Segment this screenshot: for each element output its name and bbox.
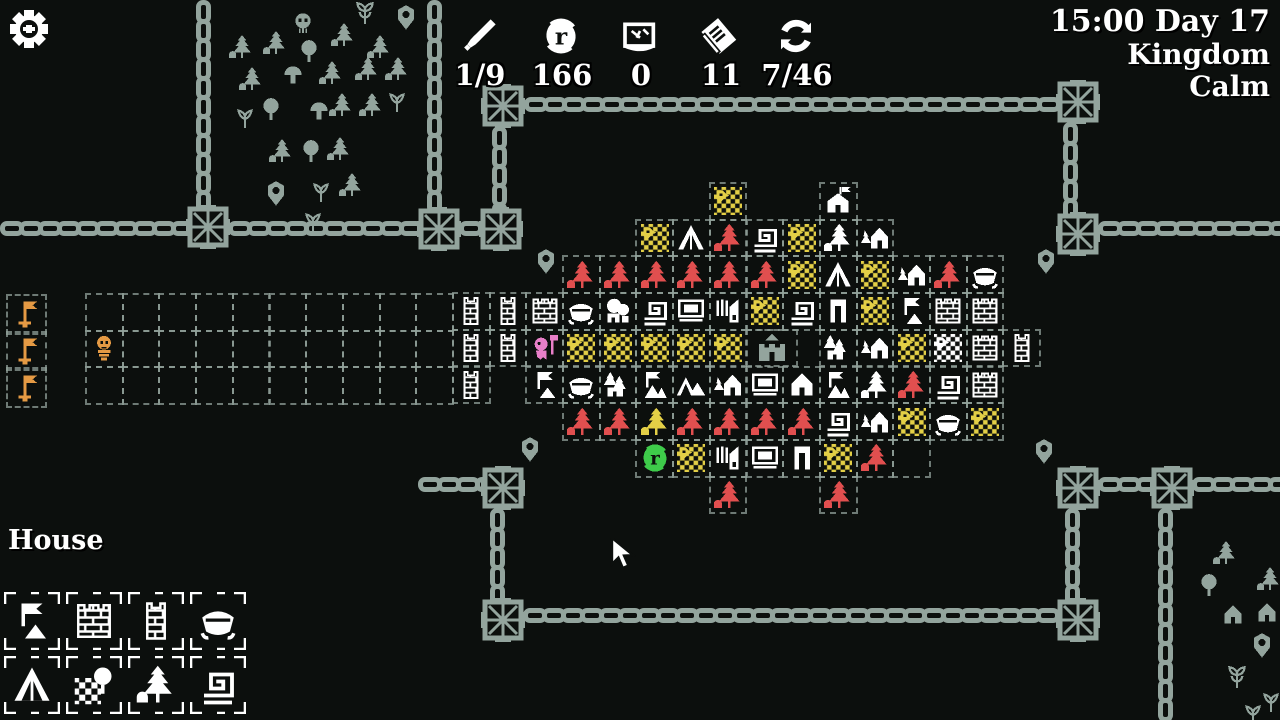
forest-round-tree bbox=[258, 96, 284, 126]
grid-cell[interactable] bbox=[158, 330, 197, 369]
chain-knot bbox=[1150, 466, 1194, 510]
tile-red-pine[interactable] bbox=[929, 255, 968, 294]
tile-red-pine[interactable] bbox=[856, 439, 895, 478]
tile-red-pine[interactable] bbox=[709, 402, 748, 441]
grid-cell[interactable] bbox=[232, 330, 271, 369]
forest-sprout bbox=[384, 88, 410, 118]
tile-red-pine[interactable] bbox=[562, 255, 601, 294]
tile-boat[interactable] bbox=[929, 402, 968, 441]
tile-spiral[interactable] bbox=[782, 292, 821, 331]
forest-sprout bbox=[232, 104, 258, 134]
tile-farm[interactable] bbox=[892, 402, 931, 441]
chain-knot bbox=[1056, 80, 1100, 124]
tile-farm[interactable] bbox=[635, 219, 674, 258]
veg-sprout bbox=[1240, 700, 1266, 720]
tile-farm[interactable] bbox=[819, 439, 858, 478]
tile-red-pine[interactable] bbox=[746, 255, 785, 294]
tile-quarry[interactable] bbox=[599, 292, 638, 331]
rally-flag-cell[interactable] bbox=[6, 367, 47, 408]
deck-icon bbox=[699, 16, 743, 56]
tile-red-pine[interactable] bbox=[709, 255, 748, 294]
settings-button[interactable] bbox=[8, 8, 50, 50]
tile-farm[interactable] bbox=[856, 292, 895, 331]
sword-icon bbox=[458, 16, 502, 56]
grid-cell[interactable] bbox=[379, 366, 418, 405]
tile-farm[interactable] bbox=[599, 329, 638, 368]
forest-pine bbox=[326, 136, 352, 166]
forest-pine bbox=[354, 56, 380, 86]
game-viewport: 15:00 Day 17 Kingdom Calm House bbox=[0, 0, 1280, 720]
map-count: 0 bbox=[596, 58, 686, 92]
palette-item-white-field[interactable] bbox=[66, 656, 122, 714]
grid-cell[interactable] bbox=[195, 366, 234, 405]
palette-item-spiral[interactable] bbox=[190, 656, 246, 714]
tile-spiral[interactable] bbox=[819, 402, 858, 441]
grid-cell[interactable] bbox=[415, 366, 454, 405]
grid-cell[interactable] bbox=[232, 366, 271, 405]
map-pin-icon bbox=[1030, 438, 1058, 470]
tile-farm[interactable] bbox=[709, 182, 748, 221]
tile-boat[interactable] bbox=[562, 366, 601, 405]
chain-knot bbox=[479, 207, 523, 251]
tile-tower[interactable] bbox=[452, 366, 491, 405]
forest-sprout bbox=[308, 178, 334, 208]
tile-red-pine[interactable] bbox=[709, 476, 748, 515]
mouse-cursor bbox=[610, 538, 640, 576]
tile-wall[interactable] bbox=[929, 292, 968, 331]
forest-pine bbox=[238, 66, 264, 96]
tile-red-pine[interactable] bbox=[709, 219, 748, 258]
tile-farm[interactable] bbox=[856, 255, 895, 294]
grid-cell[interactable] bbox=[158, 366, 197, 405]
grid-cell[interactable] bbox=[122, 366, 161, 405]
tile-house[interactable] bbox=[782, 366, 821, 405]
region-label: Kingdom bbox=[1127, 38, 1270, 71]
forest-pine bbox=[262, 30, 288, 60]
map-icon bbox=[619, 16, 663, 56]
veg-pine bbox=[1212, 540, 1238, 570]
tile-flag-bldg[interactable] bbox=[819, 366, 858, 405]
palette-item-boat[interactable] bbox=[190, 592, 246, 650]
tile-wall[interactable] bbox=[966, 329, 1005, 368]
grid-cell[interactable] bbox=[415, 293, 454, 332]
tile-mill[interactable] bbox=[709, 439, 748, 478]
forest-skull bbox=[290, 10, 316, 40]
map-pin-icon bbox=[262, 180, 290, 212]
palette-item-wall[interactable] bbox=[66, 592, 122, 650]
grid-cell[interactable] bbox=[269, 366, 308, 405]
tile-tower[interactable] bbox=[1002, 329, 1041, 368]
tile-house-tree[interactable] bbox=[892, 255, 931, 294]
tile-house-tree[interactable] bbox=[856, 402, 895, 441]
forest-pine bbox=[384, 56, 410, 86]
tile-tower[interactable] bbox=[452, 329, 491, 368]
chain-knot bbox=[417, 207, 461, 251]
veg-round-tree bbox=[1196, 572, 1222, 602]
tile-banner[interactable] bbox=[892, 292, 931, 331]
forest-round-tree bbox=[298, 138, 324, 168]
chain-knot bbox=[481, 466, 525, 510]
grid-cell[interactable] bbox=[195, 293, 234, 332]
tile-spiral[interactable] bbox=[635, 292, 674, 331]
tile-red-pine[interactable] bbox=[599, 402, 638, 441]
tile-red-pine[interactable] bbox=[672, 402, 711, 441]
tile-pines-house[interactable] bbox=[599, 366, 638, 405]
tile-flag-bldg[interactable] bbox=[635, 366, 674, 405]
tile-wall[interactable] bbox=[525, 292, 564, 331]
tile-tower[interactable] bbox=[452, 292, 491, 331]
tile-farm[interactable] bbox=[635, 329, 674, 368]
palette-item-banner[interactable] bbox=[4, 592, 60, 650]
tile-spiral[interactable] bbox=[746, 219, 785, 258]
grid-cell[interactable] bbox=[415, 330, 454, 369]
tile-wall[interactable] bbox=[966, 292, 1005, 331]
tile-door[interactable] bbox=[782, 439, 821, 478]
tile-market[interactable] bbox=[746, 366, 785, 405]
forest-pine bbox=[228, 34, 254, 64]
tile-tower[interactable] bbox=[489, 292, 528, 331]
sword-count: 1/9 bbox=[435, 58, 525, 92]
skeleton-enemy-cell[interactable] bbox=[85, 330, 124, 369]
tile-pink-worker[interactable] bbox=[525, 329, 564, 368]
grid-cell[interactable] bbox=[232, 293, 271, 332]
cycle-count: 7/46 bbox=[752, 58, 842, 92]
tile-tent[interactable] bbox=[672, 219, 711, 258]
tile-tent[interactable] bbox=[819, 255, 858, 294]
tile-farm[interactable] bbox=[966, 402, 1005, 441]
grid-cell[interactable] bbox=[85, 293, 124, 332]
tile-white-pine[interactable] bbox=[819, 219, 858, 258]
coin-count: 166 bbox=[517, 58, 607, 92]
chain-link bbox=[1269, 221, 1280, 236]
forest-pine bbox=[338, 172, 364, 202]
chain-link bbox=[1268, 477, 1280, 492]
svg-text:r: r bbox=[650, 449, 660, 470]
palette-item-tower[interactable] bbox=[128, 592, 184, 650]
tile-banner[interactable] bbox=[525, 366, 564, 405]
tile-castle[interactable] bbox=[746, 329, 799, 368]
tile-double-tent[interactable] bbox=[672, 366, 711, 405]
tile-red-pine[interactable] bbox=[635, 255, 674, 294]
tile-red-pine[interactable] bbox=[672, 255, 711, 294]
veg-plant bbox=[1224, 664, 1250, 694]
tile-farm[interactable] bbox=[782, 255, 821, 294]
tile-farm[interactable] bbox=[672, 439, 711, 478]
tile-red-pine[interactable] bbox=[892, 366, 931, 405]
svg-text:r: r bbox=[555, 22, 568, 50]
chain-knot bbox=[1056, 212, 1100, 256]
forest-plant bbox=[352, 0, 378, 30]
grid-cell[interactable] bbox=[305, 330, 344, 369]
map-pin-icon bbox=[516, 436, 544, 468]
chain-knot bbox=[186, 205, 230, 249]
tile-empty[interactable] bbox=[892, 439, 931, 478]
tile-market[interactable] bbox=[672, 292, 711, 331]
forest-sprout bbox=[300, 208, 326, 238]
tile-red-pine[interactable] bbox=[562, 402, 601, 441]
tile-wall[interactable] bbox=[966, 366, 1005, 405]
tile-boat[interactable] bbox=[562, 292, 601, 331]
chain-knot bbox=[481, 598, 525, 642]
grid-cell[interactable] bbox=[195, 330, 234, 369]
coin-icon: r bbox=[540, 16, 584, 56]
selected-build-label: House bbox=[8, 525, 104, 556]
veg-pine bbox=[1256, 566, 1280, 596]
tile-farm[interactable] bbox=[782, 219, 821, 258]
veg-house bbox=[1254, 600, 1280, 630]
status-label: Calm bbox=[1189, 70, 1270, 103]
chain-knot bbox=[1056, 598, 1100, 642]
forest-mushroom bbox=[280, 62, 306, 92]
grid-cell[interactable] bbox=[269, 330, 308, 369]
grid-cell[interactable] bbox=[342, 366, 381, 405]
chain-knot bbox=[1056, 466, 1100, 510]
grid-cell[interactable] bbox=[379, 330, 418, 369]
tile-red-pine[interactable] bbox=[599, 255, 638, 294]
tile-house-tree[interactable] bbox=[856, 329, 895, 368]
forest-mushroom bbox=[306, 98, 332, 128]
grid-cell[interactable] bbox=[122, 330, 161, 369]
tile-pines-house[interactable] bbox=[819, 329, 858, 368]
tile-house-tree[interactable] bbox=[709, 366, 748, 405]
cycle-icon bbox=[775, 16, 819, 56]
forest-pine bbox=[358, 92, 384, 122]
tile-house-tree[interactable] bbox=[856, 219, 895, 258]
grid-cell[interactable] bbox=[269, 293, 308, 332]
tile-white-pine[interactable] bbox=[856, 366, 895, 405]
tile-red-pine[interactable] bbox=[782, 402, 821, 441]
map-pin-icon bbox=[1248, 632, 1276, 664]
tile-tower[interactable] bbox=[489, 329, 528, 368]
grid-cell[interactable] bbox=[342, 293, 381, 332]
tile-green-coin[interactable]: r bbox=[635, 439, 674, 478]
clock-label: 15:00 Day 17 bbox=[1050, 4, 1270, 39]
rally-flag-cell[interactable] bbox=[6, 294, 47, 335]
tile-spiral[interactable] bbox=[929, 366, 968, 405]
tile-boat[interactable] bbox=[966, 255, 1005, 294]
tile-mill[interactable] bbox=[709, 292, 748, 331]
map-pin-icon bbox=[392, 4, 420, 36]
grid-cell[interactable] bbox=[305, 366, 344, 405]
tile-farm[interactable] bbox=[672, 329, 711, 368]
grid-cell[interactable] bbox=[342, 330, 381, 369]
tile-farm[interactable] bbox=[562, 329, 601, 368]
tile-farm[interactable] bbox=[709, 329, 748, 368]
tile-white-farm[interactable] bbox=[929, 329, 968, 368]
palette-item-tent[interactable] bbox=[4, 656, 60, 714]
grid-cell[interactable] bbox=[379, 293, 418, 332]
tile-farm[interactable] bbox=[746, 292, 785, 331]
tile-house-flag[interactable] bbox=[819, 182, 858, 221]
tile-red-pine[interactable] bbox=[746, 402, 785, 441]
tile-market[interactable] bbox=[746, 439, 785, 478]
tile-yellow-pine[interactable] bbox=[635, 402, 674, 441]
grid-cell[interactable] bbox=[305, 293, 344, 332]
gear-icon bbox=[8, 8, 50, 50]
forest-pine bbox=[268, 138, 294, 168]
rally-flag-cell[interactable] bbox=[6, 331, 47, 372]
tile-red-pine[interactable] bbox=[819, 476, 858, 515]
tile-farm[interactable] bbox=[892, 329, 931, 368]
palette-item-white-forest[interactable] bbox=[128, 656, 184, 714]
tile-door[interactable] bbox=[819, 292, 858, 331]
map-pin-icon bbox=[532, 248, 560, 280]
veg-house bbox=[1220, 602, 1246, 632]
grid-cell[interactable] bbox=[85, 366, 124, 405]
grid-cell[interactable] bbox=[122, 293, 161, 332]
map-pin-icon bbox=[1032, 248, 1060, 280]
grid-cell[interactable] bbox=[158, 293, 197, 332]
